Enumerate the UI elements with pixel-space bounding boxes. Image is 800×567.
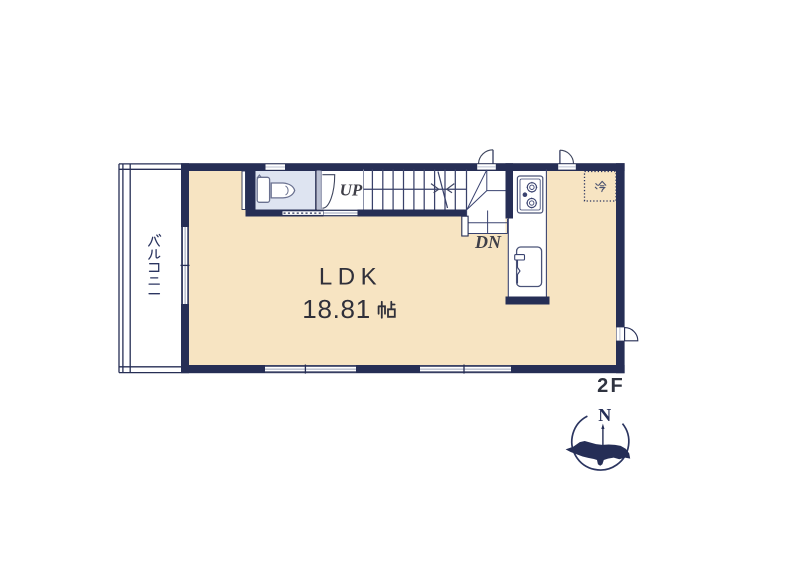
svg-text:LDK: LDK — [319, 264, 382, 291]
svg-text:DN: DN — [474, 232, 502, 252]
svg-text:UP: UP — [340, 181, 363, 200]
svg-text:18.81: 18.81 — [302, 294, 371, 324]
svg-text:N: N — [598, 405, 611, 425]
svg-text:2F: 2F — [597, 375, 625, 397]
